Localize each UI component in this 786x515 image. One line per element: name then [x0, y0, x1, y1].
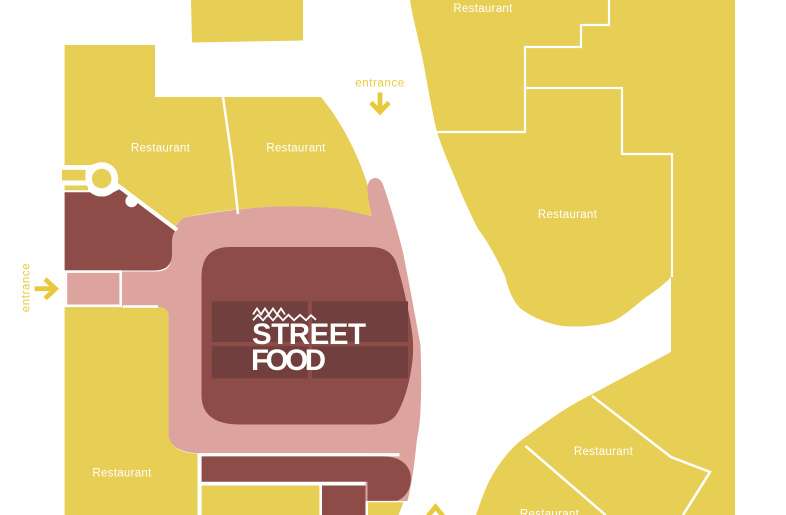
svg-text:Restaurant: Restaurant: [92, 468, 152, 480]
svg-text:Restaurant: Restaurant: [453, 3, 513, 15]
svg-text:Restaurant: Restaurant: [538, 209, 598, 221]
svg-text:Restaurant: Restaurant: [520, 509, 580, 515]
svg-text:Restaurant: Restaurant: [574, 446, 634, 458]
svg-text:entrance: entrance: [21, 263, 33, 313]
svg-text:entrance: entrance: [355, 78, 405, 90]
svg-text:FOOD: FOOD: [251, 344, 326, 377]
svg-text:Restaurant: Restaurant: [266, 143, 326, 155]
svg-text:Restaurant: Restaurant: [131, 143, 191, 155]
